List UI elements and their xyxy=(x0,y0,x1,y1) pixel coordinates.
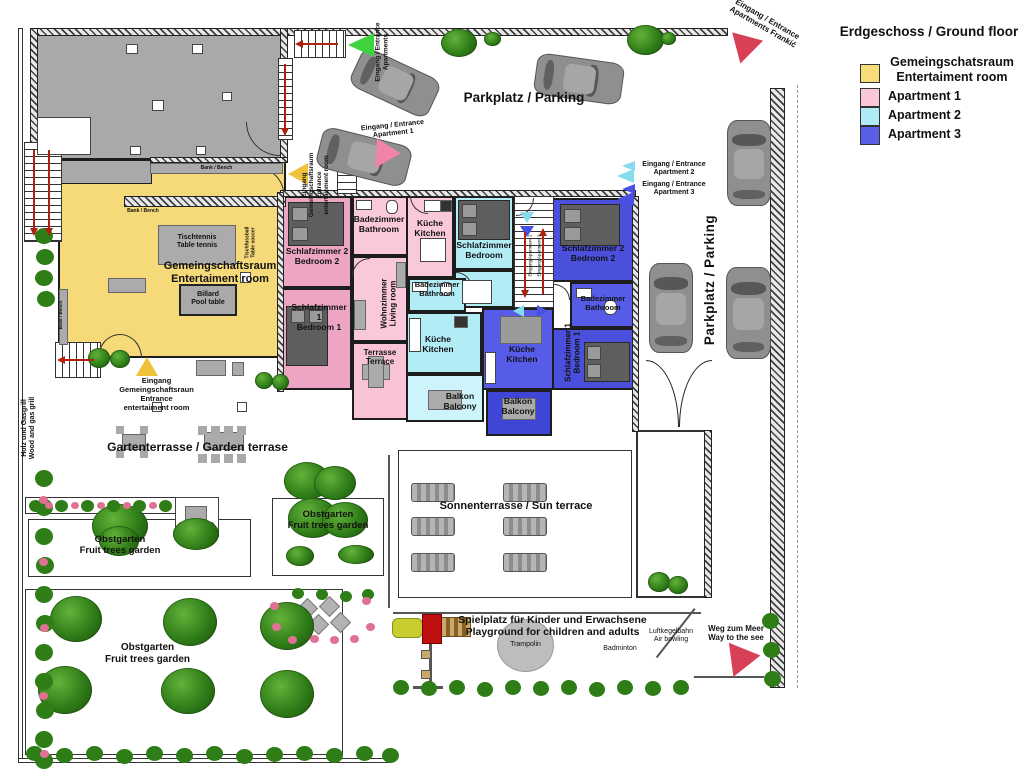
sun-terrace-label: Sonnenterrasse / Sun terrace xyxy=(406,500,626,513)
legend-swatch-entertainment xyxy=(860,64,880,83)
bush-icon xyxy=(292,588,304,599)
bench-label: Bank / Bench xyxy=(112,209,174,215)
tree-icon xyxy=(110,350,130,368)
apt3-kitchen-label: Küche Kitchen xyxy=(496,344,548,364)
entrance-arrow-garden-icon xyxy=(136,357,158,376)
legend-swatch-apartment2 xyxy=(860,107,880,126)
tree-icon xyxy=(163,598,217,646)
gate-door-left-arc xyxy=(646,360,679,427)
sofa xyxy=(108,278,146,293)
apt1-terrace-label: Terrasse Terrace xyxy=(356,348,404,367)
table-tennis-label: Tischtennis Table tennis xyxy=(158,234,236,251)
tree-icon xyxy=(441,29,477,57)
apt3-bedroom2-label: Schlafzimmer 2 Bedroom 2 xyxy=(556,243,630,263)
bench-label: Bank / Bench xyxy=(58,289,68,341)
flower-icon xyxy=(270,602,279,610)
stairs-entrance-apartment3-label: Eingang Apartment 3 xyxy=(537,229,544,283)
tree-icon xyxy=(484,32,501,46)
table-soccer-label: Tischfussball Table soccer xyxy=(246,216,259,270)
apt2-bedroom-label: Schlafzimmer Bedroom xyxy=(454,240,514,260)
flower-icon xyxy=(39,496,48,504)
side-court-wall xyxy=(704,430,712,598)
stairs-arrow xyxy=(64,359,94,361)
tree-icon xyxy=(668,576,688,594)
stairs-arrow xyxy=(524,232,526,290)
sun-lounger xyxy=(411,517,455,536)
tree-icon xyxy=(50,596,102,642)
hedge-bush-icon xyxy=(35,470,53,487)
sink xyxy=(356,200,372,210)
stairs-arrow xyxy=(284,64,286,128)
garden-divider-line xyxy=(388,455,390,608)
apt3-balcony-label: Balkon Balcony xyxy=(490,396,546,416)
stove xyxy=(454,316,468,328)
apt3-bathroom-label: Badezimmer Bathroom xyxy=(574,295,632,313)
apt1-living-label: Wohnzimmer Living room xyxy=(380,273,399,335)
playground-slide xyxy=(392,618,423,638)
tree-icon xyxy=(255,372,273,389)
tree-icon xyxy=(314,466,356,500)
tree-icon xyxy=(338,545,374,564)
playground-swing-seat xyxy=(421,670,431,679)
boundary-wall-bottom xyxy=(18,758,390,763)
stairs-arrowhead-icon xyxy=(521,290,529,298)
tree-icon xyxy=(88,348,110,368)
bed xyxy=(560,204,620,246)
side-court xyxy=(636,430,712,598)
tree-icon xyxy=(286,546,314,566)
orchard-label-1: Obstgarten Fruit trees garden xyxy=(70,534,170,556)
entrance-entertainment-garden-label: Eingang Gemeingschaftsraun Entrance ente… xyxy=(104,377,209,412)
apt2-bathroom-label: Badezimmer Bathroom xyxy=(410,281,464,299)
tree-icon xyxy=(38,666,92,714)
car-icon xyxy=(649,263,693,353)
entrance-arrow-apartments-icon xyxy=(348,33,374,57)
playground-title: Spielplatz für Kinder und Erwachsene Pla… xyxy=(450,614,655,639)
door-arc xyxy=(554,284,570,300)
stairs-arrow-apartment2-icon xyxy=(520,212,534,223)
post xyxy=(237,402,247,412)
playground-swing-seat xyxy=(421,650,431,659)
sofa xyxy=(354,300,366,330)
orchard-label-2: Obstgarten Fruit trees garden xyxy=(278,509,378,531)
stairs-arrow-apartment2-icon xyxy=(513,305,524,317)
tree-icon xyxy=(272,374,289,390)
car-roof xyxy=(733,298,763,330)
tree-icon xyxy=(161,668,215,714)
parking-top-label: Parkplatz / Parking xyxy=(450,90,598,106)
stairs-arrowhead-icon xyxy=(45,228,53,236)
apt1-bedroom1-label: Schlafzimmer 1 Bedroom 1 xyxy=(288,302,350,332)
car-icon xyxy=(727,120,771,206)
air-bowling-label: Luftkegelbahn Air bowling xyxy=(642,628,700,645)
garden-terrace-label: Gartenterrasse / Garden terrase xyxy=(80,440,315,454)
column xyxy=(130,146,141,155)
apt3-bedroom1-label: Schlafzimmer 1 Bedroom 1 xyxy=(564,321,583,385)
stairs-arrowhead-icon xyxy=(281,128,289,136)
hedge-bush-icon xyxy=(26,746,43,761)
entertainment-room-label: Gemeingschaftsraum Entertaiment room xyxy=(145,260,295,286)
legend-label-apartment1: Apartment 1 xyxy=(888,89,998,104)
road-dashed-line xyxy=(797,85,798,688)
playground-tower xyxy=(422,614,442,644)
badminton-label: Badminton xyxy=(596,645,644,653)
car-roof xyxy=(656,293,685,325)
hedge-bush-icon xyxy=(393,680,409,695)
bench-label: Bank / Bench xyxy=(150,163,283,174)
entertainment-inner-wall xyxy=(124,196,286,207)
kitchen-table xyxy=(420,238,446,262)
entrance-apartments-top-label: Eingang / Entrance Apartments xyxy=(375,5,397,100)
stairs-arrowhead-icon xyxy=(30,228,38,236)
sea-path-bottom xyxy=(694,676,764,678)
garden-sofa xyxy=(196,360,226,376)
stairs-street xyxy=(24,142,62,242)
sun-lounger xyxy=(503,553,547,572)
dining-table xyxy=(500,316,542,344)
sun-lounger xyxy=(411,553,455,572)
parking-right-label: Parkplatz / Parking xyxy=(702,207,720,353)
entrance-arrow-frankic-icon xyxy=(725,32,763,67)
legend-label-entertainment: Gemeingschatsraum Entertaiment room xyxy=(886,55,1018,85)
outbuilding-storage-room xyxy=(37,117,91,155)
way-to-sea-label: Weg zum Meer Way to the see xyxy=(704,624,768,643)
kitchen-counter xyxy=(485,352,496,384)
entrance-apartment1-label: Eingang / Entrance Apartment 1 xyxy=(351,118,434,143)
entrance-apartment2-label: Eingang / Entrance Apartment 2 xyxy=(636,161,712,178)
entrance-apartment3-label: Eingang / Entrance Apartment 3 xyxy=(636,181,712,198)
tree-icon xyxy=(648,572,670,592)
apt1-bedroom2-label: Schlafzimmer 2 Bedroom 2 xyxy=(283,246,351,266)
garden-chairs xyxy=(116,426,124,434)
column xyxy=(152,100,164,111)
site-wall-right xyxy=(770,88,785,688)
garden-side-table xyxy=(232,362,244,376)
legend-title: Erdgeschoss / Ground floor xyxy=(838,24,1020,40)
gate-door-right-arc xyxy=(679,360,712,427)
apt2-balcony-label: Balkon Balcony xyxy=(432,391,488,411)
legend-label-apartment2: Apartment 2 xyxy=(888,108,998,123)
outbuilding-wall-top xyxy=(30,28,288,36)
stove xyxy=(440,200,452,212)
entrance-entertainment-side-label: Eingang Gemeingschaftsraum Entrance ente… xyxy=(301,137,335,233)
tree-icon xyxy=(260,670,314,718)
entrance-arrow-apartment2-icon xyxy=(617,169,634,183)
apt1-kitchen-label: Küche Kitchen xyxy=(407,218,453,238)
dining-table xyxy=(462,280,492,304)
car-icon xyxy=(726,267,771,359)
stairs-arrow xyxy=(33,150,35,228)
column xyxy=(196,146,206,155)
stairs-entrance-apartment2-label: Eingang Apartment 2 xyxy=(528,229,535,283)
column xyxy=(126,44,138,54)
playground-base-bar xyxy=(413,686,443,689)
bed xyxy=(458,200,510,240)
building-wall-right xyxy=(632,196,639,432)
stairs-arrow xyxy=(48,150,50,228)
trampoline-label: Trampolin xyxy=(499,641,552,649)
toilet xyxy=(386,200,398,214)
stairs-arrow xyxy=(302,43,338,45)
stairs-arrow-apartment3-icon xyxy=(537,305,548,317)
floor-plan-canvas: Bank / Bench Bank / Bench Bank / Bench T… xyxy=(0,0,1024,772)
column xyxy=(192,44,203,54)
legend-swatch-apartment1 xyxy=(860,88,880,107)
column xyxy=(222,92,232,101)
building-wall-left xyxy=(277,192,284,392)
tree-icon xyxy=(661,32,676,45)
bed xyxy=(584,342,630,382)
apt2-kitchen-label: Küche Kitchen xyxy=(414,334,462,354)
tree-icon xyxy=(173,518,219,550)
car-roof xyxy=(734,149,763,179)
pool-table-label: Billard Pool table xyxy=(179,291,237,308)
grill-label: Holz und Gasgrill Wood and gas grill xyxy=(21,385,41,471)
tree-icon xyxy=(627,25,664,55)
apt1-bathroom-label: Badezimmer Bathroom xyxy=(350,214,408,234)
entrance-arrow-apartment3-icon xyxy=(617,192,634,206)
sun-lounger xyxy=(503,517,547,536)
garden-chairs xyxy=(198,426,207,435)
legend-swatch-apartment3 xyxy=(860,126,880,145)
legend-label-apartment3: Apartment 3 xyxy=(888,127,998,142)
orchard-label-3: Obstgarten Fruit trees garden xyxy=(95,642,200,666)
tree-icon xyxy=(260,602,314,650)
